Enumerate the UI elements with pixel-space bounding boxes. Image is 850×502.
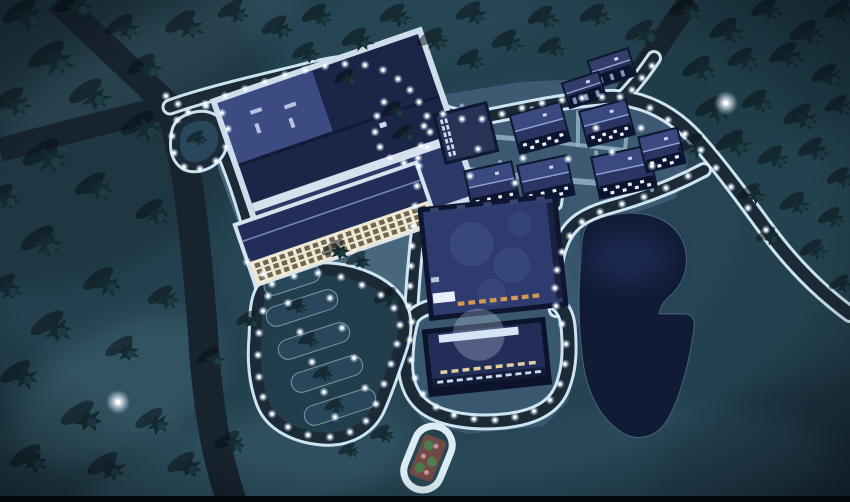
street-lamp-light [340, 59, 350, 69]
street-lamp-light [392, 339, 402, 349]
street-lamp-light [258, 269, 268, 279]
street-lamp-light [283, 422, 293, 432]
tree-canopy-highlight [811, 34, 819, 42]
street-lamp-light [195, 164, 205, 174]
tree-canopy-highlight [805, 118, 813, 126]
tree-canopy-highlight [237, 12, 244, 19]
street-lamp-light [389, 303, 399, 313]
tree-canopy-highlight [337, 407, 342, 412]
street-lamp-light [406, 261, 416, 271]
street-lamp-light [201, 101, 211, 111]
tree-canopy-highlight [747, 60, 754, 67]
street-lamp-light [457, 114, 467, 124]
street-lamp-light [371, 399, 381, 409]
street-lamp-light [510, 412, 520, 422]
street-lamp-light [550, 283, 560, 293]
tree-canopy-highlight [51, 157, 61, 167]
street-lamp-light [319, 387, 329, 397]
street-lamp-light [560, 359, 570, 369]
tree-canopy-highlight [157, 213, 165, 221]
street-lamp-light [320, 61, 330, 71]
street-lamp-light [636, 123, 646, 133]
street-lamp-light [615, 92, 625, 102]
tree-canopy-highlight [771, 237, 777, 243]
street-lamp-light [617, 199, 627, 209]
street-lamp-light [325, 293, 335, 303]
street-lamp-light [410, 201, 420, 211]
street-lamp-light [563, 154, 573, 164]
street-lamp-light [167, 131, 177, 141]
street-lamp-light [370, 127, 380, 137]
scene-canvas[interactable] [0, 0, 850, 502]
street-lamp-light [407, 241, 417, 251]
street-lamp-light [647, 161, 657, 171]
street-lamp-light [378, 65, 388, 75]
street-lamp-light [376, 290, 386, 300]
street-lamp-light [242, 257, 252, 267]
tree-canopy-highlight [555, 48, 561, 54]
street-lamp-light [591, 123, 601, 133]
tree-canopy-highlight [771, 10, 778, 17]
street-lamp-light [336, 272, 346, 282]
tree-canopy-highlight [107, 283, 116, 292]
tree-canopy-highlight [99, 188, 108, 197]
street-lamp-light [545, 395, 555, 405]
tree-canopy-highlight [299, 307, 304, 312]
street-lamp-light [379, 379, 389, 389]
tree-canopy-highlight [475, 14, 482, 21]
tree-canopy-highlight [349, 79, 355, 85]
street-lamp-light [399, 158, 409, 168]
street-lamp-light [220, 91, 230, 101]
street-lamp-light [372, 111, 382, 121]
street-lamp-light [726, 182, 736, 192]
street-lamp-light [518, 153, 528, 163]
street-lamp-light [254, 328, 264, 338]
street-lamp-light [211, 156, 221, 166]
street-lamp-light [490, 415, 500, 425]
tree-canopy-highlight [157, 422, 165, 430]
street-lamp-light [375, 142, 385, 152]
street-lamp-light [258, 306, 268, 316]
tree-canopy-highlight [799, 204, 806, 211]
street-lamp-light [360, 60, 370, 70]
street-lamp-light [300, 65, 310, 75]
street-lamp-light [414, 97, 424, 107]
street-lamp-light [385, 153, 395, 163]
street-lamp-light [386, 359, 396, 369]
street-lamp-light [393, 74, 403, 84]
tree-canopy-highlight [755, 194, 761, 200]
tree-canopy-highlight [361, 40, 368, 47]
street-lamp-light [419, 121, 429, 131]
tree-canopy-highlight [817, 150, 824, 157]
tree-canopy-highlight [835, 218, 841, 224]
street-lamp-light [663, 115, 673, 125]
tree-canopy-highlight [29, 16, 39, 26]
tree-canopy-highlight [214, 358, 220, 364]
street-lamp-light [555, 379, 565, 389]
street-lamp-light [473, 144, 483, 154]
tree-canopy-highlight [189, 466, 197, 474]
street-lamp-light [360, 383, 370, 393]
tree-canopy-highlight [167, 298, 174, 305]
street-lamp-light [307, 357, 317, 367]
street-lamp-light [418, 389, 428, 399]
tree-canopy-highlight [731, 32, 739, 40]
street-lamp-light [267, 279, 277, 289]
tree-canopy-highlight [689, 10, 696, 17]
tree-canopy-highlight [147, 128, 157, 138]
street-lamp-light [637, 73, 647, 83]
street-lamp-light [557, 247, 567, 257]
tree-canopy-highlight [57, 328, 67, 338]
tree-canopy-highlight [189, 26, 198, 35]
street-lamp-light [295, 327, 305, 337]
pond-highlight [586, 232, 670, 284]
tree-canopy-highlight [385, 435, 391, 441]
street-lamp-light [761, 225, 771, 235]
street-lamp-light [683, 171, 693, 181]
street-lamp-light [577, 93, 587, 103]
street-lamp-light [627, 85, 637, 95]
street-lamp-light [313, 268, 323, 278]
tree-canopy-highlight [599, 16, 606, 23]
street-lamp-light [173, 99, 183, 109]
street-lamp-light [395, 320, 405, 330]
tree-canopy-highlight [57, 59, 67, 69]
street-lamp-light [267, 409, 277, 419]
building-central-hall[interactable] [417, 193, 568, 321]
tree-canopy-highlight [647, 34, 655, 42]
tree-canopy-highlight [251, 321, 257, 327]
tree-canopy-highlight [361, 261, 367, 267]
street-lamp-light [345, 427, 355, 437]
street-lamp-light [647, 61, 657, 71]
street-lamp-light [422, 111, 432, 121]
street-lamp-light [465, 171, 475, 181]
street-lamp-light [565, 231, 575, 241]
street-lamp-light [258, 392, 268, 402]
street-lamp-light [161, 91, 171, 101]
street-lamp-light [416, 141, 426, 151]
tree-canopy-highlight [9, 288, 17, 296]
street-lamp-light [361, 416, 371, 426]
street-lamp-light [431, 402, 441, 412]
street-lamp-light [221, 142, 231, 152]
tree-canopy-highlight [234, 443, 241, 450]
street-lamp-light [253, 350, 263, 360]
street-lamp-light [412, 181, 422, 191]
tree-canopy-highlight [34, 460, 43, 469]
street-lamp-light [349, 353, 359, 363]
tree-canopy-highlight [24, 376, 33, 385]
street-lamp-light [406, 355, 416, 365]
street-lamp-light [449, 410, 459, 420]
tree-canopy-highlight [737, 144, 745, 152]
tree-canopy-highlight [339, 250, 345, 256]
tree-canopy-highlight [325, 375, 330, 380]
tree-canopy-highlight [17, 103, 26, 112]
street-lamp-light [254, 372, 264, 382]
tree-canopy-highlight [127, 28, 135, 36]
street-lamp-light [408, 221, 418, 231]
tree-canopy-highlight [407, 135, 413, 141]
street-lamp-light [337, 323, 347, 333]
tree-canopy-highlight [761, 102, 768, 109]
street-lamp-light [280, 70, 290, 80]
tree-canopy-highlight [311, 341, 316, 346]
tree-canopy-highlight [79, 6, 88, 15]
letterbox-bar [0, 496, 850, 502]
street-lamp-light [106, 390, 130, 414]
street-lamp-light [263, 291, 273, 301]
street-lamp-light [405, 281, 415, 291]
street-lamp-light [510, 178, 520, 188]
street-lamp-light [379, 97, 389, 107]
street-lamp-light [497, 109, 507, 119]
street-lamp-light [696, 145, 706, 155]
street-lamp-light [357, 280, 367, 290]
tree-canopy-highlight [397, 111, 403, 117]
street-lamp-light [529, 406, 539, 416]
street-lamp-light [595, 207, 605, 217]
street-lamp-light [607, 147, 617, 157]
tree-canopy-highlight [149, 68, 157, 76]
street-lamp-light [561, 339, 571, 349]
street-lamp-light [537, 98, 547, 108]
street-lamp-light [711, 163, 721, 173]
street-lamp-light [680, 129, 690, 139]
street-lamp-light [405, 85, 415, 95]
street-lamp-light [407, 317, 417, 327]
street-lamp-light [410, 373, 420, 383]
street-lamp-light [577, 217, 587, 227]
tree-canopy-highlight [842, 106, 848, 112]
game-viewport[interactable] [0, 0, 850, 502]
street-lamp-light [330, 412, 340, 422]
street-lamp-light [223, 124, 233, 134]
tree-canopy-highlight [351, 451, 356, 456]
street-lamp-light [552, 265, 562, 275]
tree-canopy-highlight [704, 70, 712, 78]
tree-canopy-highlight [547, 18, 554, 25]
street-lamp-light [260, 77, 270, 87]
street-lamp-light [405, 335, 415, 345]
street-lamp-light [303, 430, 313, 440]
tree-canopy-highlight [321, 16, 328, 23]
street-lamp-light [183, 107, 193, 117]
tree-canopy-highlight [791, 56, 799, 64]
tree-canopy-highlight [511, 42, 518, 49]
street-lamp-light [325, 432, 335, 442]
street-lamp-light [714, 91, 738, 115]
tree-canopy-highlight [474, 60, 480, 66]
tree-canopy-highlight [309, 53, 315, 59]
tree-canopy-highlight [199, 139, 204, 144]
street-lamp-light [597, 92, 607, 102]
street-lamp-light [289, 271, 299, 281]
tree-canopy-highlight [281, 28, 288, 35]
street-lamp-light [172, 115, 182, 125]
street-lamp-light [557, 95, 567, 105]
street-lamp-light [414, 161, 424, 171]
street-lamp-light [639, 192, 649, 202]
street-lamp-light [557, 319, 567, 329]
street-lamp-light [477, 114, 487, 124]
street-lamp-light [217, 108, 227, 118]
tree-canopy-highlight [87, 418, 97, 428]
tree-canopy-highlight [47, 243, 57, 253]
tree-canopy-highlight [95, 96, 105, 106]
street-lamp-light [404, 301, 414, 311]
street-lamp-light [169, 148, 179, 158]
tree-canopy-highlight [817, 250, 823, 256]
street-lamp-light [517, 103, 527, 113]
tree-canopy-highlight [777, 158, 784, 165]
tree-canopy-highlight [844, 285, 850, 291]
tree-canopy-highlight [111, 468, 120, 477]
street-lamp-light [661, 183, 671, 193]
tree-canopy-highlight [127, 350, 135, 358]
street-lamp-light [469, 414, 479, 424]
street-lamp-light [283, 298, 293, 308]
street-lamp-light [743, 203, 753, 213]
street-lamp-light [551, 301, 561, 311]
tree-canopy-highlight [831, 76, 838, 83]
street-lamp-light [645, 103, 655, 113]
street-lamp-light [240, 84, 250, 94]
tree-canopy-highlight [399, 16, 406, 23]
tree-canopy-highlight [437, 40, 444, 47]
tree-canopy-highlight [7, 198, 15, 206]
street-lamp-light [438, 109, 448, 119]
street-lamp-light [179, 162, 189, 172]
